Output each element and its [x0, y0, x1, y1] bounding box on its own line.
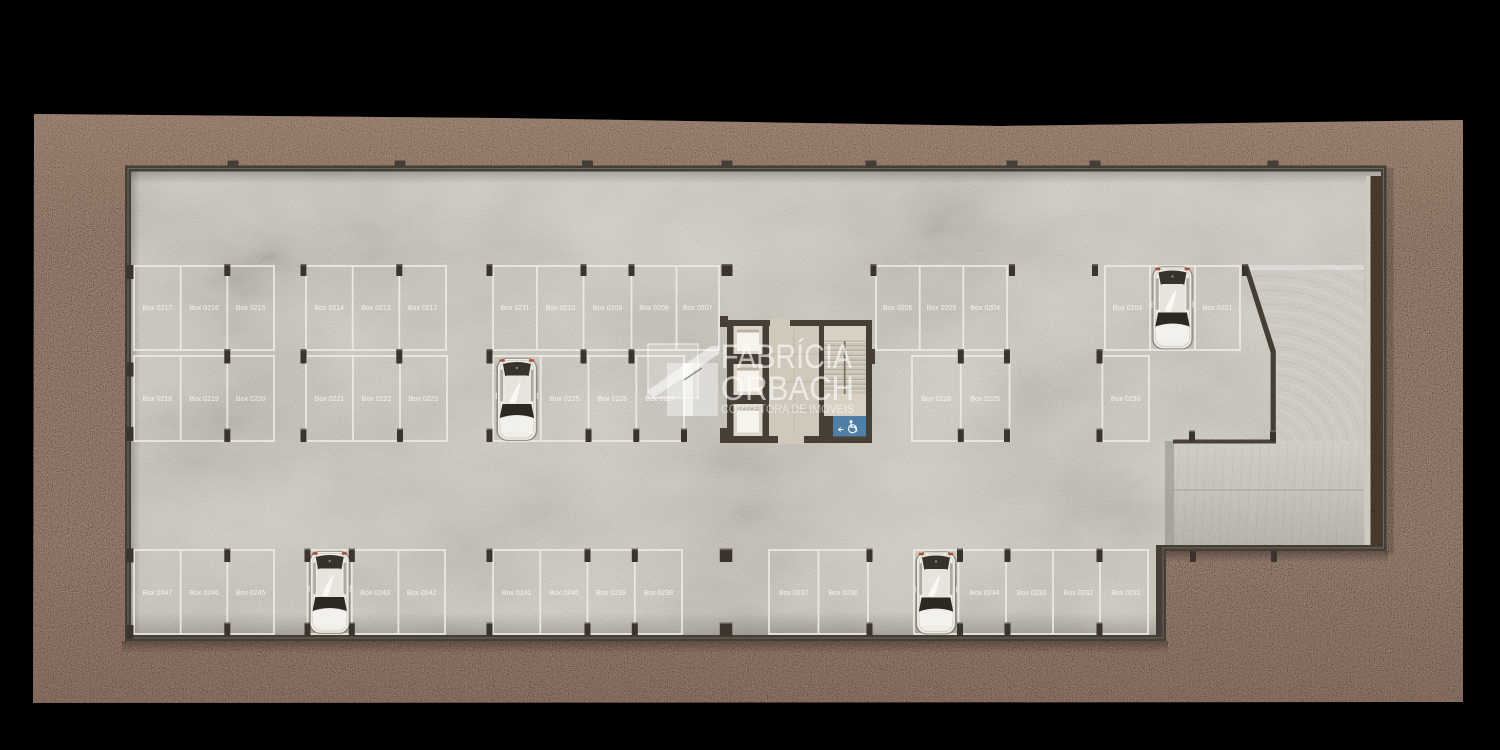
- svg-text:Box 0208: Box 0208: [639, 305, 669, 312]
- svg-text:Box 0233: Box 0233: [1017, 590, 1047, 597]
- svg-text:Box 0226: Box 0226: [598, 396, 628, 403]
- svg-text:Box 0237: Box 0237: [779, 590, 809, 597]
- svg-text:Box 0213: Box 0213: [361, 305, 391, 312]
- svg-text:Box 0223: Box 0223: [409, 396, 439, 403]
- svg-text:Box 0245: Box 0245: [236, 590, 266, 597]
- svg-text:Box 0206: Box 0206: [883, 305, 913, 312]
- svg-text:Box 0201: Box 0201: [1203, 305, 1233, 312]
- svg-text:Box 0225: Box 0225: [550, 396, 580, 403]
- svg-text:Box 0232: Box 0232: [1064, 590, 1094, 597]
- svg-text:Box 0234: Box 0234: [970, 590, 1000, 597]
- svg-text:Box 0241: Box 0241: [502, 590, 532, 597]
- svg-text:Box 0217: Box 0217: [143, 305, 173, 312]
- svg-text:Box 0205: Box 0205: [927, 305, 957, 312]
- svg-text:Box 0207: Box 0207: [683, 305, 713, 312]
- svg-text:Box 0219: Box 0219: [189, 396, 219, 403]
- svg-text:CORRETORA DE IMÓVEIS: CORRETORA DE IMÓVEIS: [721, 401, 854, 416]
- svg-text:Box 0246: Box 0246: [189, 590, 219, 597]
- svg-text:Box 0210: Box 0210: [546, 305, 576, 312]
- svg-text:Box 0212: Box 0212: [408, 305, 438, 312]
- svg-text:Box 0230: Box 0230: [1111, 396, 1141, 403]
- svg-text:Box 0203: Box 0203: [1113, 305, 1143, 312]
- svg-text:Box 0222: Box 0222: [362, 396, 392, 403]
- svg-text:Box 0216: Box 0216: [189, 305, 219, 312]
- svg-text:Box 0242: Box 0242: [407, 590, 437, 597]
- svg-text:Box 0214: Box 0214: [315, 305, 345, 312]
- svg-text:Box 0229: Box 0229: [970, 396, 1000, 403]
- svg-text:Box 0218: Box 0218: [143, 396, 173, 403]
- svg-text:Box 0247: Box 0247: [143, 590, 173, 597]
- svg-text:Box 0236: Box 0236: [829, 590, 859, 597]
- svg-text:Box 0220: Box 0220: [236, 396, 266, 403]
- svg-text:Box 0231: Box 0231: [1111, 590, 1141, 597]
- svg-text:Box 0240: Box 0240: [549, 590, 579, 597]
- svg-text:Box 0221: Box 0221: [315, 396, 345, 403]
- svg-text:Box 0239: Box 0239: [596, 590, 626, 597]
- svg-text:Box 0228: Box 0228: [922, 396, 952, 403]
- svg-text:Box 0211: Box 0211: [500, 305, 529, 312]
- svg-text:Box 0204: Box 0204: [970, 305, 1000, 312]
- svg-text:Box 0215: Box 0215: [236, 305, 266, 312]
- svg-text:Box 0243: Box 0243: [360, 590, 390, 597]
- svg-text:Box 0209: Box 0209: [593, 305, 623, 312]
- svg-text:Box 0238: Box 0238: [644, 590, 674, 597]
